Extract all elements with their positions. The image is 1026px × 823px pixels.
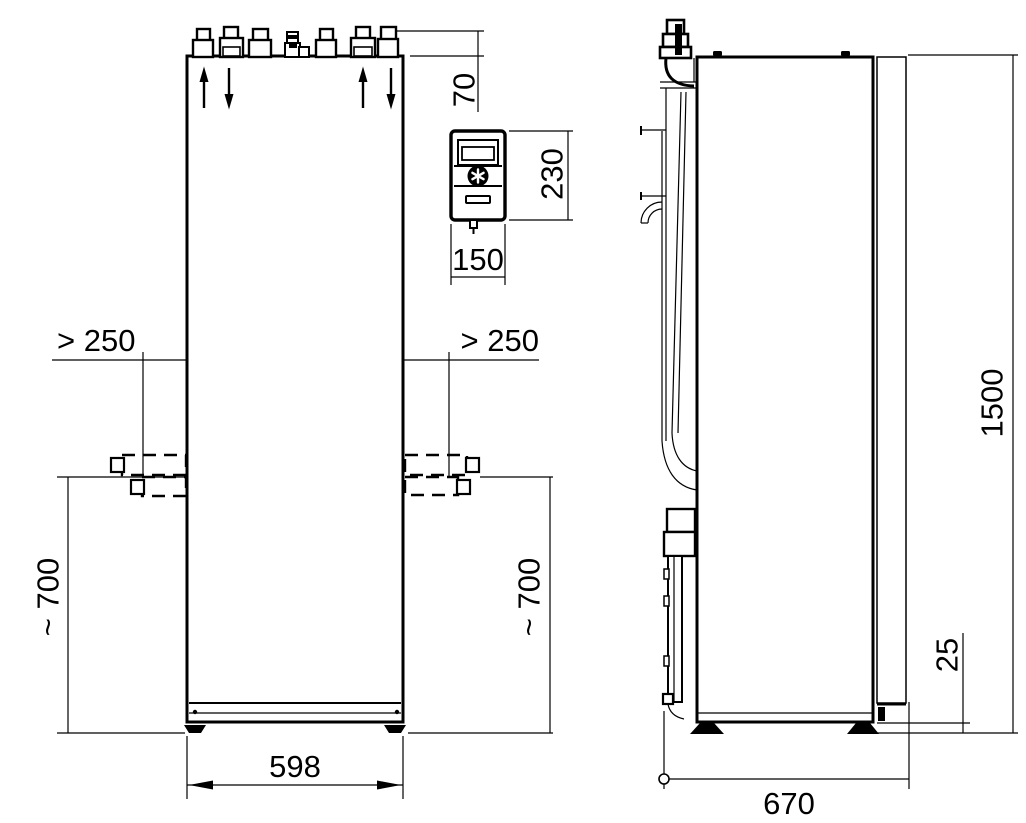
pipe-connector [193, 40, 213, 57]
dim-base-clearance-label: 25 [930, 638, 965, 672]
dim-panel-width: 150 [451, 224, 505, 285]
top-screw [713, 51, 722, 56]
side-front-foot [690, 723, 724, 734]
dim-panel-height-label: 230 [535, 148, 570, 200]
top-pipe-connections [193, 27, 398, 57]
dim-pipe-height-left: ~ 700 [31, 477, 188, 733]
dimension-drawing-page: 70 > 250 > 250 [0, 0, 1026, 823]
cable-gland-connector [285, 32, 309, 57]
dim-connection-height: 70 [397, 31, 484, 112]
card-slot [466, 196, 490, 203]
side-cabinet-outline [697, 57, 873, 722]
bolt-dot [395, 710, 399, 714]
dim-total-height: 1500 [908, 55, 1018, 733]
dim-pipe-height-right: ~ 700 [408, 477, 553, 733]
dim-pipe-height-right-label: ~ 700 [512, 558, 547, 636]
rear-panel [877, 57, 906, 721]
dim-panel-width-label: 150 [452, 242, 504, 277]
bolt-dot [193, 710, 197, 714]
pipe-elbow-hook [641, 202, 662, 223]
control-panel-detail: 230 150 [451, 131, 573, 285]
dim-depth-label: 670 [763, 786, 815, 821]
dim-clearance-right: > 250 [403, 323, 539, 477]
lower-front-bracket [663, 509, 695, 719]
top-screw [841, 51, 850, 56]
side-pipes-right [405, 455, 479, 495]
control-knob [468, 166, 489, 187]
front-right-foot [384, 725, 406, 733]
side-pipes-left [111, 455, 186, 496]
dim-front-width-label: 598 [269, 749, 321, 784]
technical-drawing: 70 > 250 > 250 [0, 0, 1026, 823]
dim-connection-height-label: 70 [447, 73, 482, 107]
front-cabinet-outline [187, 56, 403, 722]
dim-panel-height: 230 [509, 131, 573, 220]
display-screen [462, 147, 494, 160]
pipe-connector [249, 40, 271, 57]
dim-arrow-left [189, 781, 213, 790]
dim-front-width: 598 [187, 736, 403, 799]
pipe-connector [378, 39, 398, 57]
front-panel-profile [662, 88, 697, 490]
dim-pipe-height-left-label: ~ 700 [31, 558, 66, 636]
dim-total-height-label: 1500 [975, 369, 1010, 438]
datum-circle [659, 774, 669, 784]
top-pipe-fitting [660, 20, 697, 88]
dim-clearance-right-label: > 250 [461, 323, 539, 358]
dim-clearance-left-label: > 250 [57, 323, 135, 358]
front-left-foot [184, 725, 206, 733]
panel-cable [470, 220, 477, 234]
side-view: 1500 25 670 [641, 20, 1018, 821]
side-rear-foot [847, 723, 879, 734]
pipe-connector [316, 40, 336, 57]
dim-arrow-right [377, 781, 401, 790]
